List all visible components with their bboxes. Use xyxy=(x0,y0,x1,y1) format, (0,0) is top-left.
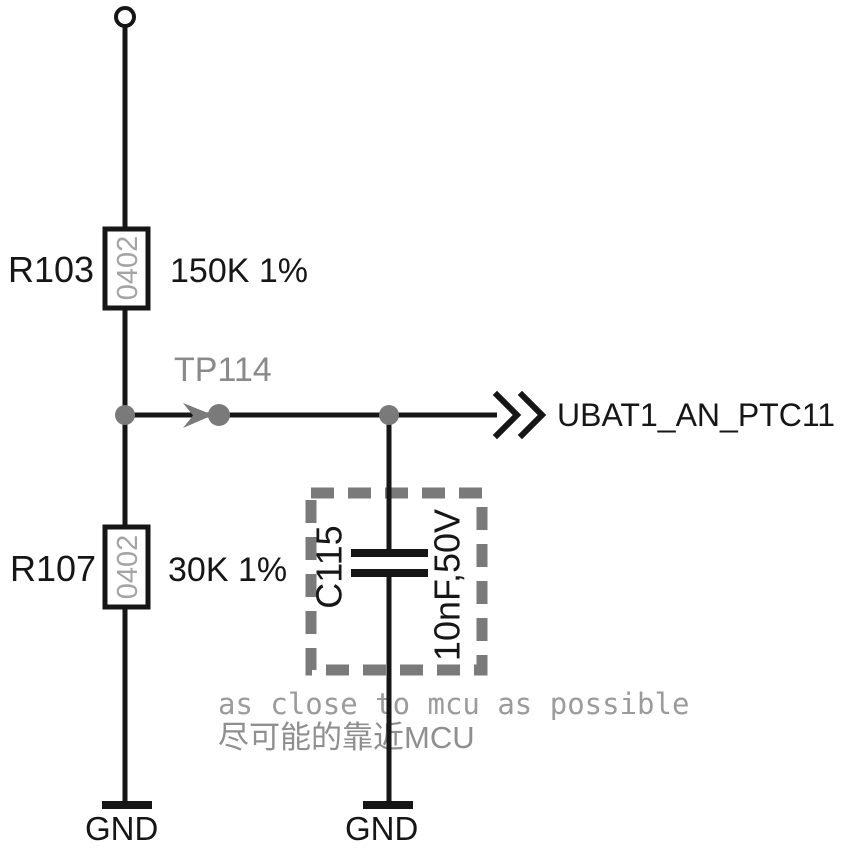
schematic-drawing: as close to mcu as possible 尽可能的靠近MCU 04… xyxy=(0,0,844,852)
net-name-label: UBAT1_AN_PTC11 xyxy=(557,397,835,433)
junction-dot-cap-branch xyxy=(379,405,399,425)
schematic-canvas: as close to mcu as possible 尽可能的靠近MCU 04… xyxy=(0,0,844,852)
capacitor-bottom-plate xyxy=(351,569,428,577)
resistor-r107-value-label: 30K 1% xyxy=(168,551,287,589)
resistor-r107-ref-label: R107 xyxy=(10,548,96,589)
resistor-r103-package-text: 0402 xyxy=(112,236,144,301)
resistor-r107-package-text: 0402 xyxy=(112,535,144,600)
note-english: as close to mcu as possible xyxy=(218,687,689,721)
input-terminal-circle xyxy=(116,8,134,26)
testpoint-pad-dot xyxy=(208,404,230,426)
note-chinese: 尽可能的靠近MCU xyxy=(218,720,475,755)
resistor-r103-ref-label: R103 xyxy=(8,249,94,290)
gnd-bar-left xyxy=(102,801,152,809)
gnd-label-left: GND xyxy=(85,810,158,847)
capacitor-ref-label: C115 xyxy=(309,525,350,608)
junction-dot-divider-tap xyxy=(115,405,135,425)
testpoint-ref-label: TP114 xyxy=(174,351,272,389)
capacitor-top-plate xyxy=(351,549,428,557)
capacitor-value-label: 10nF,50V xyxy=(427,509,468,661)
gnd-bar-right xyxy=(363,801,413,809)
resistor-r103-value-label: 150K 1% xyxy=(170,252,308,290)
gnd-label-right: GND xyxy=(345,810,418,847)
